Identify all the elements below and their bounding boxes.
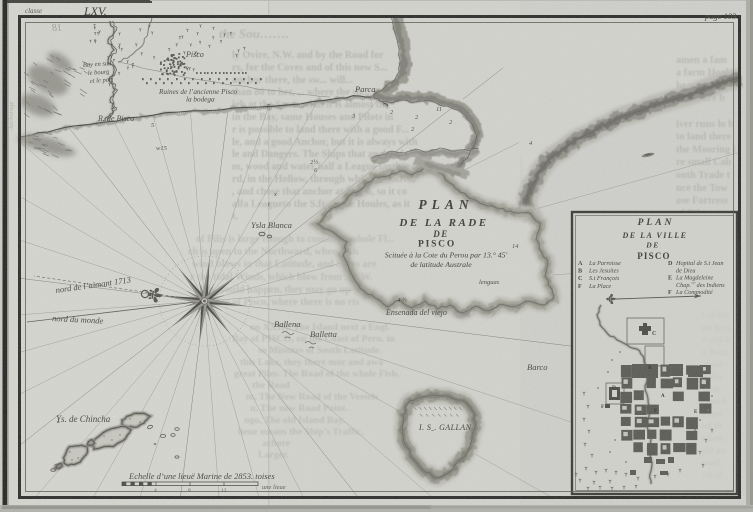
svg-text:Anchorage: Anchorage	[8, 101, 15, 131]
svg-text:18: 18	[52, 23, 62, 34]
svg-text:classe: classe	[25, 7, 42, 15]
svg-text:page 103.: page 103.	[704, 11, 739, 21]
svg-text:LXV.: LXV.	[83, 4, 107, 18]
